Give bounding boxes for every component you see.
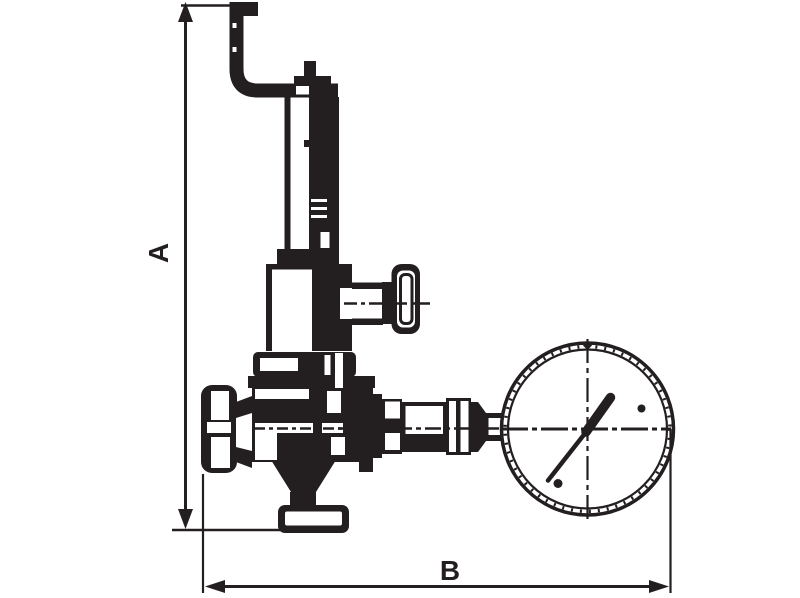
inlet-window-top xyxy=(211,391,229,420)
dimension-b-label: B xyxy=(440,555,460,586)
bonnet-slot xyxy=(321,232,330,248)
lever-pin-top xyxy=(233,23,237,28)
inlet-neck-bore xyxy=(236,413,252,451)
outlet-flange xyxy=(271,460,349,533)
fitting-block-window-bottom xyxy=(385,433,400,450)
pressure-gauge xyxy=(501,339,674,519)
dimension-b-arrow-right xyxy=(649,580,669,593)
stem-tip xyxy=(304,61,316,78)
body-top-gallery xyxy=(255,389,309,399)
fitting-collar xyxy=(373,394,382,458)
bonnet-nut xyxy=(277,249,339,265)
inlet-window-mid xyxy=(207,422,231,433)
cap-band xyxy=(294,76,331,86)
flange-slot xyxy=(325,355,331,375)
valve-with-gauge-drawing: A xyxy=(0,0,800,598)
inlet-window-bottom xyxy=(211,437,230,468)
fitting-shoulder xyxy=(471,402,486,452)
dimension-a-arrow-down xyxy=(178,509,193,529)
guide-rod xyxy=(285,97,291,250)
fitting-pipe-window xyxy=(406,406,444,434)
valve-body xyxy=(252,379,373,472)
technical-drawing-canvas: A xyxy=(0,0,800,598)
flange-channel xyxy=(335,353,343,391)
spring-housing xyxy=(266,264,430,351)
bonnet-column xyxy=(309,97,339,250)
body-top-plate xyxy=(248,376,375,388)
dimension-a-label: A xyxy=(143,243,174,263)
outlet-neck xyxy=(290,492,316,507)
handwheel-rim xyxy=(401,275,413,324)
body-chamber xyxy=(255,433,277,460)
fitting-block-window-top xyxy=(385,402,400,419)
flange-window xyxy=(260,358,298,371)
union-nut-slot-left xyxy=(449,401,456,452)
body-slot-upper xyxy=(327,391,341,413)
gauge-knob xyxy=(554,479,563,488)
lever-pin-bottom xyxy=(233,47,237,52)
bonnet xyxy=(277,97,339,265)
thread-line xyxy=(311,207,327,210)
lever-fork-slot xyxy=(296,86,309,95)
gauge-dial-dot xyxy=(638,405,646,413)
body-right-flange xyxy=(359,379,373,472)
body-stem-column xyxy=(313,415,322,437)
thread-line xyxy=(311,199,327,202)
housing-window xyxy=(272,270,312,352)
body-flange xyxy=(248,352,375,391)
thread-line xyxy=(311,215,327,218)
outlet-flange-slot xyxy=(285,512,342,526)
dimension-b-arrow-left xyxy=(205,580,225,593)
outlet-cone xyxy=(271,460,336,492)
stem-cap xyxy=(294,61,331,86)
wheel-stem-wall-bottom xyxy=(352,319,383,326)
rod-bracket xyxy=(304,140,310,147)
body-slot-lower xyxy=(331,437,345,455)
union-nut-slot-right xyxy=(461,401,469,452)
inlet-connector xyxy=(201,385,252,473)
wheel-stem-wall-top xyxy=(352,283,383,290)
